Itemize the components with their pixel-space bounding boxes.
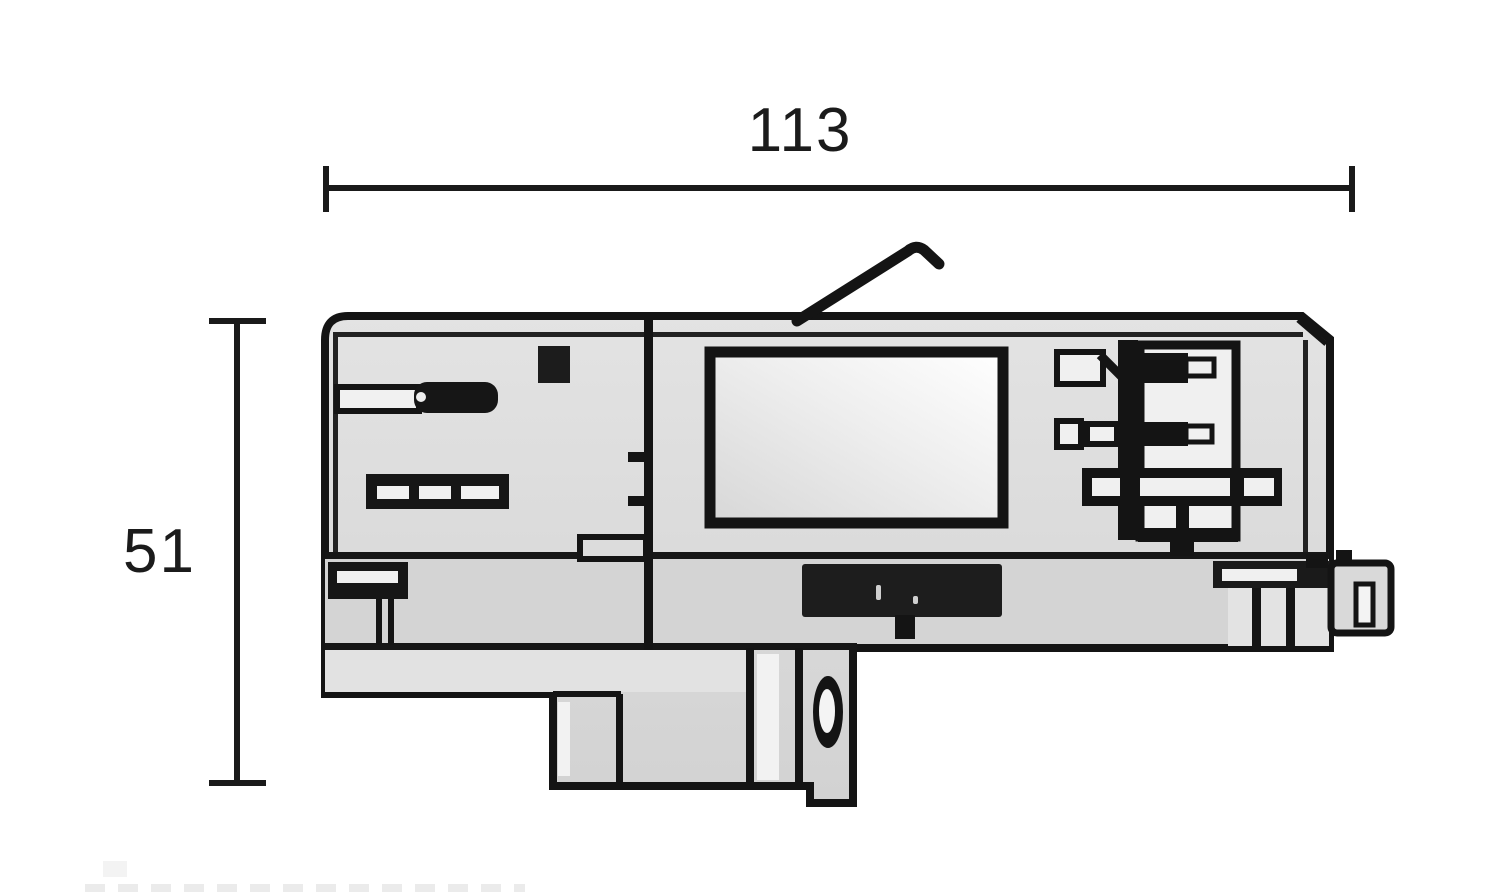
adapter-side-view-drawing — [0, 0, 1500, 893]
contact-lower-bar-left — [1118, 506, 1138, 540]
divider-notch-top — [628, 452, 646, 462]
connector-pin-dot — [416, 392, 426, 402]
button-tab — [895, 615, 915, 639]
contact-stub-mid — [1186, 426, 1212, 442]
contact-bottom-bar — [1138, 528, 1238, 542]
step-detail — [580, 537, 646, 559]
height-dim-line — [234, 321, 240, 785]
bracket-leg-1 — [376, 599, 382, 645]
divider-notch-bottom — [628, 496, 646, 506]
slot-2 — [419, 486, 451, 499]
foot-white-column — [757, 654, 779, 780]
connector-bar-white — [337, 387, 419, 411]
contact-top-left — [1057, 352, 1103, 384]
height-dim-tick-bottom — [209, 780, 266, 786]
foot-step-highlight — [558, 702, 570, 776]
foot-divider-1 — [746, 648, 754, 786]
contact-mid-left — [1057, 421, 1117, 447]
locking-lever — [797, 247, 939, 321]
foot-step-right-edge — [616, 694, 623, 784]
contact-bar-top — [1140, 353, 1188, 383]
technical-drawing-canvas: 113 51 — [0, 0, 1500, 893]
inner-top-edge — [333, 332, 1303, 337]
inner-left-edge — [333, 332, 338, 558]
bus-bar-slot-left — [1092, 478, 1120, 496]
lower-shelf — [325, 650, 753, 692]
right-band-fitting — [1213, 561, 1330, 646]
height-dimension-line — [209, 318, 266, 786]
height-dim-tick-top — [209, 318, 266, 324]
label-window — [710, 352, 1003, 523]
right-column-divider-1 — [1252, 588, 1261, 646]
foot-divider-2 — [795, 648, 803, 786]
button-body — [802, 564, 1002, 617]
watermark-dashes — [85, 884, 525, 892]
small-square-port — [538, 346, 570, 383]
latch-nub-1 — [1306, 554, 1328, 568]
latch-slot — [1356, 584, 1373, 625]
right-band-slot — [1222, 569, 1297, 581]
button-mark-2 — [913, 596, 918, 604]
contact-stub-top — [1186, 359, 1214, 376]
contact-bar-mid — [1140, 422, 1188, 446]
width-dimension-line — [323, 166, 1355, 212]
terminal-slot-block — [366, 474, 509, 509]
divider-line — [644, 316, 653, 650]
bus-bar-slot-center — [1140, 478, 1230, 496]
width-dim-tick-right — [1349, 166, 1355, 212]
width-dim-tick-left — [323, 166, 329, 212]
right-columns-base — [1228, 588, 1329, 646]
foot-hole — [819, 689, 835, 733]
width-dim-line — [325, 185, 1355, 191]
left-connector-bar — [337, 382, 498, 413]
bracket-leg-2 — [388, 599, 394, 645]
foot-step-top-line — [553, 691, 621, 697]
connector-bar-black — [414, 382, 498, 413]
watermark-chip — [103, 861, 127, 877]
contact-bottom-stub — [1170, 542, 1194, 556]
band-bottom-line — [325, 643, 857, 650]
slot-1 — [377, 486, 409, 499]
right-column-divider-2 — [1286, 588, 1295, 646]
slot-3 — [461, 486, 499, 499]
bracket-slot — [337, 571, 398, 583]
bus-bar-slot-right — [1244, 478, 1274, 496]
button-mark-1 — [876, 585, 881, 600]
inner-right-edge — [1303, 340, 1308, 558]
